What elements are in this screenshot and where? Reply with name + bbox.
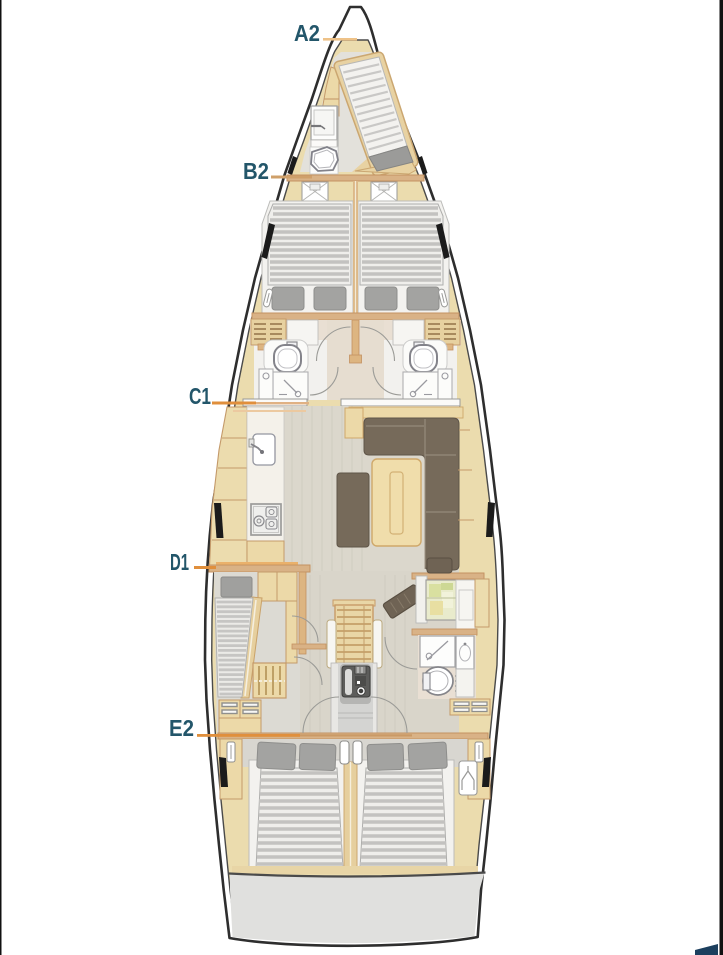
svg-text:B2: B2	[243, 158, 269, 184]
svg-text:A2: A2	[294, 20, 320, 46]
svg-text:E2: E2	[169, 715, 194, 741]
svg-text:D1: D1	[170, 549, 189, 575]
svg-text:C1: C1	[189, 383, 211, 409]
